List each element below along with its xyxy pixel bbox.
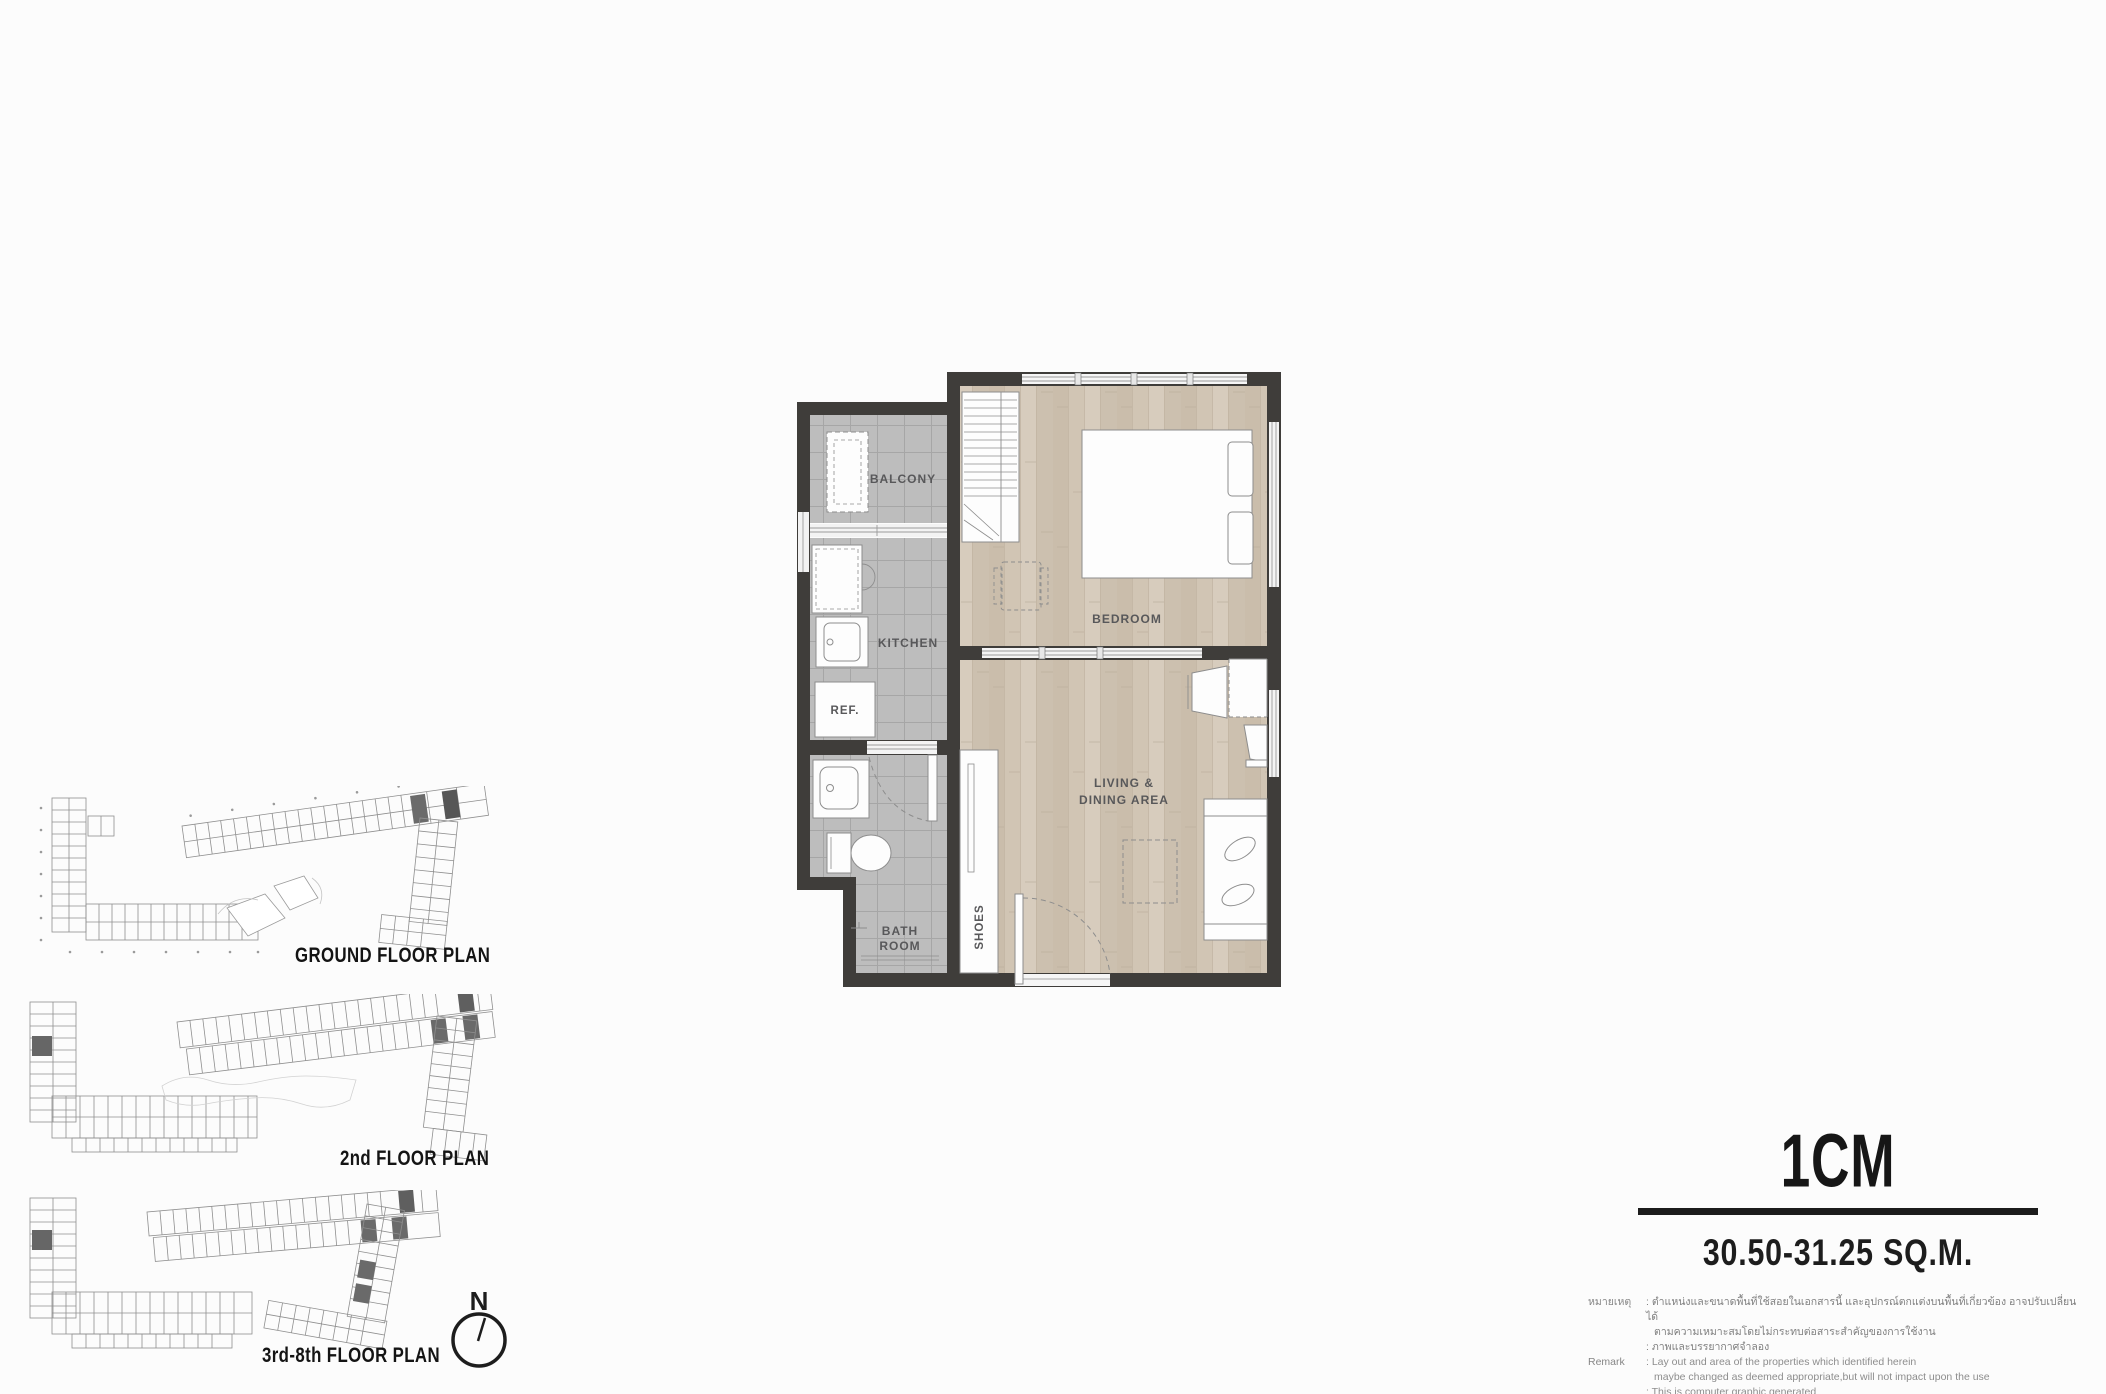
- bathroom-label-line1: BATH: [882, 924, 918, 938]
- bathroom-label-line2: ROOM: [879, 939, 920, 953]
- third-floor-plan-label: 3rd-8th FLOOR PLAN: [262, 1344, 440, 1368]
- ground-amenity-shapes: [218, 876, 322, 936]
- ref-label: REF.: [831, 705, 860, 717]
- remark-thai-line1: : ตำแหน่งและขนาดพื้นที่ใช้สอยในเอกสารนี้…: [1646, 1295, 2088, 1325]
- dining-chair-bottom: [1244, 725, 1267, 767]
- second-floor-plan-label: 2nd FLOOR PLAN: [340, 1147, 489, 1171]
- ac-condenser-unit: [827, 432, 868, 512]
- dining-chair-left: [1188, 666, 1227, 718]
- compass-needle: [478, 1318, 485, 1341]
- wardrobe: [962, 392, 1019, 542]
- third-right-building: [264, 1190, 406, 1349]
- toilet: [827, 833, 891, 873]
- second-amenity-outline: [162, 1076, 356, 1107]
- unit-underline: [1638, 1208, 2038, 1215]
- living-label-line1: LIVING &: [1094, 776, 1154, 790]
- remark-en-label: Remark: [1588, 1355, 1646, 1370]
- remark-thai-label: หมายเหตุ: [1588, 1295, 1646, 1325]
- bathroom-door-leaf: [928, 755, 937, 821]
- balcony-label: BALCONY: [870, 472, 936, 486]
- remark-en-line2: maybe changed as deemed appropriate,but …: [1646, 1370, 2088, 1385]
- floorplan-sheet: BALCONY KITCHEN REF. BATH ROOM BEDROOM L…: [0, 0, 2106, 1394]
- remark-en-line3: : This is computer graphic generated: [1646, 1385, 2088, 1394]
- ground-left-building: [40, 798, 260, 953]
- third-middle-building: [147, 1190, 440, 1262]
- unit-area-range: 30.50-31.25 SQ.M.: [1674, 1232, 2002, 1274]
- kitchen-label: KITCHEN: [878, 636, 938, 650]
- remark-en-line1: : Lay out and area of the properties whi…: [1646, 1355, 2088, 1370]
- second-middle-building: [177, 994, 496, 1076]
- ground-middle-building: [181, 786, 489, 858]
- second-floor-plan-drawing: [12, 994, 504, 1166]
- bed: [1082, 430, 1253, 578]
- entrance-door-leaf: [1015, 894, 1023, 984]
- remarks-block: หมายเหตุ : ตำแหน่งและขนาดพื้นที่ใช้สอยใน…: [1588, 1295, 2088, 1394]
- unit-info-block: 1CM 30.50-31.25 SQ.M.: [1638, 1122, 2038, 1274]
- unit-type-code: 1CM: [1694, 1121, 1982, 1201]
- bedroom-label: BEDROOM: [1092, 612, 1162, 626]
- living-label-line2: DINING AREA: [1079, 793, 1169, 807]
- third-left-building: [30, 1198, 252, 1348]
- remark-thai-line2: ตามความเหมาะสมโดยไม่กระทบต่อสาระสำคัญของ…: [1646, 1325, 2088, 1340]
- ground-floor-plan-label: GROUND FLOOR PLAN: [295, 944, 490, 968]
- shoes-label: SHOES: [974, 904, 986, 949]
- remark-thai-line3: : ภาพและบรรยากาศจำลอง: [1646, 1340, 2088, 1355]
- dining-table: [1229, 659, 1267, 717]
- second-left-building: [30, 1002, 257, 1152]
- sofa: [1204, 799, 1267, 940]
- north-compass: N: [433, 1270, 528, 1375]
- north-label: N: [470, 1286, 489, 1316]
- ground-right-building: [379, 815, 458, 949]
- unit-floor-plan: BALCONY KITCHEN REF. BATH ROOM BEDROOM L…: [797, 372, 1281, 994]
- third-floor-plan-drawing: [12, 1190, 452, 1362]
- kitchen-sink: [816, 617, 868, 667]
- ground-floor-plan-drawing: [22, 786, 502, 968]
- bathroom-sink: [813, 760, 869, 818]
- second-right-building: [420, 1016, 500, 1161]
